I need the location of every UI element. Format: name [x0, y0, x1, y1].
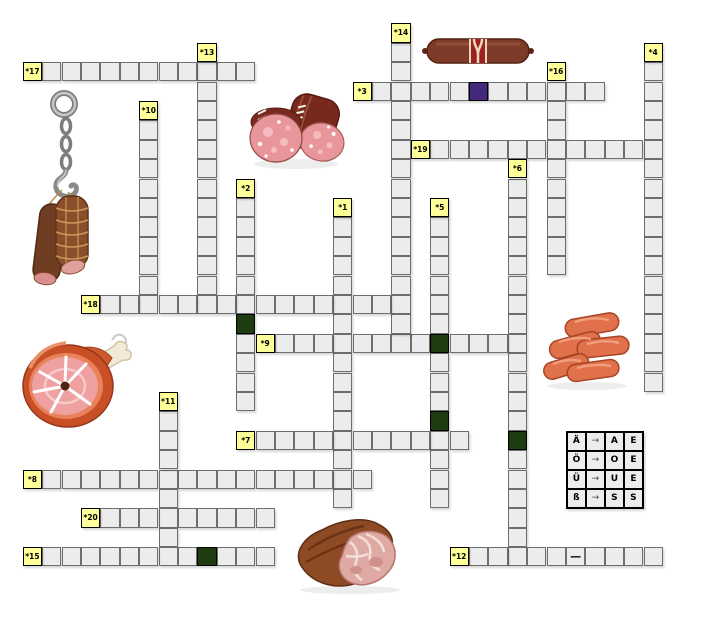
- letter-cell[interactable]: [391, 276, 410, 295]
- letter-cell[interactable]: [42, 547, 61, 566]
- letter-cell[interactable]: [333, 256, 352, 275]
- letter-cell[interactable]: [139, 295, 158, 314]
- letter-cell[interactable]: [197, 237, 216, 256]
- letter-cell[interactable]: [159, 470, 178, 489]
- clue-cell-9[interactable]: *9: [256, 334, 275, 353]
- letter-cell[interactable]: [391, 256, 410, 275]
- letter-cell[interactable]: [333, 295, 352, 314]
- clue-cell-6[interactable]: *6: [508, 159, 527, 178]
- letter-cell[interactable]: [236, 373, 255, 392]
- letter-cell[interactable]: [256, 547, 275, 566]
- letter-cell[interactable]: [236, 392, 255, 411]
- legend-cell: Ö: [567, 451, 586, 470]
- letter-cell[interactable]: [256, 295, 275, 314]
- clue-cell-17[interactable]: *17: [23, 62, 42, 81]
- letter-cell[interactable]: [139, 470, 158, 489]
- letter-cell[interactable]: [391, 295, 410, 314]
- letter-cell[interactable]: [430, 237, 449, 256]
- letter-cell[interactable]: [391, 431, 410, 450]
- letter-cell[interactable]: [644, 179, 663, 198]
- letter-cell[interactable]: [644, 353, 663, 372]
- sausage-pile-icon: [543, 306, 631, 392]
- clue-cell-7[interactable]: *7: [236, 431, 255, 450]
- legend-cell: ß: [567, 489, 586, 508]
- letter-cell[interactable]: [527, 82, 546, 101]
- letter-cell[interactable]: [411, 334, 430, 353]
- letter-cell[interactable]: [236, 508, 255, 527]
- letter-cell[interactable]: [139, 217, 158, 236]
- letter-cell[interactable]: [372, 431, 391, 450]
- letter-cell[interactable]: [372, 334, 391, 353]
- letter-cell[interactable]: [508, 276, 527, 295]
- letter-cell[interactable]: [197, 159, 216, 178]
- arrow-icon: →: [586, 489, 605, 508]
- letter-cell[interactable]: [256, 431, 275, 450]
- letter-cell[interactable]: [120, 547, 139, 566]
- letter-cell[interactable]: [547, 120, 566, 139]
- letter-cell[interactable]: [275, 470, 294, 489]
- letter-cell[interactable]: [139, 276, 158, 295]
- letter-cell[interactable]: [81, 547, 100, 566]
- letter-cell[interactable]: [333, 450, 352, 469]
- letter-cell[interactable]: [644, 82, 663, 101]
- letter-cell[interactable]: [120, 62, 139, 81]
- letter-cell[interactable]: [547, 179, 566, 198]
- arrow-icon: →: [586, 470, 605, 489]
- letter-cell[interactable]: [508, 392, 527, 411]
- letter-cell[interactable]: [139, 179, 158, 198]
- legend-cell: E: [624, 470, 643, 489]
- clue-cell-10[interactable]: *10: [139, 101, 158, 120]
- letter-cell[interactable]: [508, 217, 527, 236]
- letter-cell[interactable]: [139, 62, 158, 81]
- letter-cell[interactable]: [547, 198, 566, 217]
- letter-cell[interactable]: [42, 470, 61, 489]
- letter-cell[interactable]: [81, 62, 100, 81]
- letter-cell[interactable]: [139, 140, 158, 159]
- letter-cell[interactable]: [391, 179, 410, 198]
- letter-cell[interactable]: [197, 120, 216, 139]
- clue-cell-15[interactable]: *15: [23, 547, 42, 566]
- letter-cell[interactable]: [644, 120, 663, 139]
- hyphen-cell[interactable]: —: [566, 547, 585, 566]
- legend-cell: O: [605, 451, 624, 470]
- sausage-stick-icon: [418, 32, 538, 70]
- ham-hock-image: [20, 326, 138, 434]
- letter-cell[interactable]: [236, 295, 255, 314]
- letter-cell[interactable]: [333, 489, 352, 508]
- letter-cell[interactable]: [547, 140, 566, 159]
- letter-cell[interactable]: [100, 470, 119, 489]
- letter-cell[interactable]: [275, 295, 294, 314]
- letter-cell[interactable]: [430, 373, 449, 392]
- letter-cell[interactable]: [391, 101, 410, 120]
- letter-cell[interactable]: [159, 489, 178, 508]
- clue-cell-14[interactable]: *14: [391, 23, 410, 42]
- legend-cell: Ü: [567, 470, 586, 489]
- letter-cell[interactable]: [62, 62, 81, 81]
- letter-cell[interactable]: [120, 508, 139, 527]
- letter-cell[interactable]: [314, 431, 333, 450]
- letter-cell[interactable]: [469, 334, 488, 353]
- letter-cell[interactable]: [294, 334, 313, 353]
- letter-cell[interactable]: [469, 140, 488, 159]
- letter-cell[interactable]: [62, 547, 81, 566]
- letter-cell[interactable]: [159, 62, 178, 81]
- letter-cell[interactable]: [527, 547, 546, 566]
- letter-cell[interactable]: [644, 198, 663, 217]
- letter-cell[interactable]: [508, 450, 527, 469]
- letter-cell[interactable]: [644, 256, 663, 275]
- letter-cell[interactable]: [430, 140, 449, 159]
- letter-cell[interactable]: [411, 82, 430, 101]
- letter-cell[interactable]: [508, 334, 527, 353]
- letter-cell[interactable]: [508, 489, 527, 508]
- letter-cell[interactable]: [372, 295, 391, 314]
- letter-cell[interactable]: [508, 314, 527, 333]
- letter-cell[interactable]: [236, 198, 255, 217]
- letter-cell[interactable]: [585, 140, 604, 159]
- letter-cell[interactable]: [197, 179, 216, 198]
- letter-cell[interactable]: [430, 217, 449, 236]
- letter-cell[interactable]: [100, 62, 119, 81]
- letter-cell[interactable]: [508, 179, 527, 198]
- letter-cell[interactable]: [236, 62, 255, 81]
- letter-cell[interactable]: [391, 217, 410, 236]
- letter-cell[interactable]: [391, 43, 410, 62]
- letter-cell[interactable]: [508, 140, 527, 159]
- letter-cell[interactable]: [236, 353, 255, 372]
- sausage-stick-image: [418, 32, 538, 74]
- salami-slices-icon: [246, 92, 346, 170]
- letter-cell[interactable]: [450, 82, 469, 101]
- letter-cell[interactable]: [450, 334, 469, 353]
- letter-cell[interactable]: [333, 431, 352, 450]
- letter-cell[interactable]: [139, 508, 158, 527]
- letter-cell[interactable]: [333, 411, 352, 430]
- arrow-icon: →: [586, 451, 605, 470]
- letter-cell[interactable]: [430, 392, 449, 411]
- letter-cell[interactable]: [159, 295, 178, 314]
- letter-cell[interactable]: [333, 392, 352, 411]
- letter-cell[interactable]: [508, 547, 527, 566]
- letter-cell[interactable]: [547, 101, 566, 120]
- letter-cell[interactable]: [236, 237, 255, 256]
- letter-cell[interactable]: [391, 120, 410, 139]
- letter-cell[interactable]: [644, 295, 663, 314]
- letter-cell[interactable]: [450, 140, 469, 159]
- letter-cell[interactable]: [547, 237, 566, 256]
- separator-cell: [430, 411, 449, 430]
- roast-meat-image: [292, 512, 410, 600]
- legend-cell: E: [624, 432, 643, 451]
- letter-cell[interactable]: [294, 431, 313, 450]
- letter-cell[interactable]: [527, 140, 546, 159]
- letter-cell[interactable]: [333, 217, 352, 236]
- letter-cell[interactable]: [275, 334, 294, 353]
- legend-cell: E: [624, 451, 643, 470]
- letter-cell[interactable]: [547, 82, 566, 101]
- letter-cell[interactable]: [508, 411, 527, 430]
- letter-cell[interactable]: [197, 295, 216, 314]
- letter-cell[interactable]: [430, 276, 449, 295]
- letter-cell[interactable]: [566, 140, 585, 159]
- letter-cell[interactable]: [585, 82, 604, 101]
- letter-cell[interactable]: [139, 198, 158, 217]
- letter-cell[interactable]: [139, 547, 158, 566]
- letter-cell[interactable]: [333, 334, 352, 353]
- letter-cell[interactable]: [120, 295, 139, 314]
- letter-cell[interactable]: [508, 295, 527, 314]
- letter-cell[interactable]: [139, 237, 158, 256]
- letter-cell[interactable]: [159, 508, 178, 527]
- letter-cell[interactable]: [217, 508, 236, 527]
- letter-cell[interactable]: [256, 508, 275, 527]
- letter-cell[interactable]: [314, 470, 333, 489]
- letter-cell[interactable]: [353, 295, 372, 314]
- letter-cell[interactable]: [644, 314, 663, 333]
- letter-cell[interactable]: [197, 470, 216, 489]
- letter-cell[interactable]: [159, 528, 178, 547]
- legend-cell: S: [624, 489, 643, 508]
- letter-cell[interactable]: [236, 276, 255, 295]
- clue-cell-5[interactable]: *5: [430, 198, 449, 217]
- clue-cell-8[interactable]: *8: [23, 470, 42, 489]
- legend-cell: U: [605, 470, 624, 489]
- letter-cell[interactable]: [197, 140, 216, 159]
- letter-cell[interactable]: [430, 256, 449, 275]
- letter-cell[interactable]: [333, 237, 352, 256]
- legend-cell: Ä: [567, 432, 586, 451]
- letter-cell[interactable]: [333, 314, 352, 333]
- letter-cell[interactable]: [488, 82, 507, 101]
- letter-cell[interactable]: [430, 295, 449, 314]
- letter-cell[interactable]: [333, 276, 352, 295]
- letter-cell[interactable]: [159, 411, 178, 430]
- letter-cell[interactable]: [605, 547, 624, 566]
- letter-cell[interactable]: [566, 82, 585, 101]
- letter-cell[interactable]: [547, 256, 566, 275]
- separator-cell: [197, 547, 216, 566]
- clue-cell-4[interactable]: *4: [644, 43, 663, 62]
- letter-cell[interactable]: [314, 334, 333, 353]
- letter-cell[interactable]: [197, 198, 216, 217]
- letter-cell[interactable]: [430, 489, 449, 508]
- letter-cell[interactable]: [508, 470, 527, 489]
- ham-hock-icon: [20, 326, 138, 430]
- letter-cell[interactable]: [100, 547, 119, 566]
- letter-cell[interactable]: [197, 256, 216, 275]
- letter-cell[interactable]: [391, 140, 410, 159]
- letter-cell[interactable]: [430, 470, 449, 489]
- letter-cell[interactable]: [139, 120, 158, 139]
- letter-cell[interactable]: [391, 334, 410, 353]
- letter-cell[interactable]: [624, 547, 643, 566]
- letter-cell[interactable]: [217, 470, 236, 489]
- letter-cell[interactable]: [430, 431, 449, 450]
- letter-cell[interactable]: [644, 217, 663, 236]
- letter-cell[interactable]: [391, 159, 410, 178]
- letter-cell[interactable]: [391, 82, 410, 101]
- letter-cell[interactable]: [62, 470, 81, 489]
- letter-cell[interactable]: [644, 101, 663, 120]
- letter-cell[interactable]: [508, 508, 527, 527]
- letter-cell[interactable]: [139, 256, 158, 275]
- letter-cell[interactable]: [644, 547, 663, 566]
- letter-cell[interactable]: [644, 276, 663, 295]
- letter-cell[interactable]: [353, 470, 372, 489]
- hanging-cured-sausages-image: [26, 86, 106, 290]
- letter-cell[interactable]: [391, 237, 410, 256]
- letter-cell[interactable]: [488, 547, 507, 566]
- letter-cell[interactable]: [488, 334, 507, 353]
- letter-cell[interactable]: [353, 431, 372, 450]
- clue-cell-16[interactable]: *16: [547, 62, 566, 81]
- letter-cell[interactable]: [547, 217, 566, 236]
- arrow-icon: →: [586, 432, 605, 451]
- letter-cell[interactable]: [469, 547, 488, 566]
- letter-cell[interactable]: [159, 547, 178, 566]
- letter-cell[interactable]: [430, 82, 449, 101]
- letter-cell[interactable]: [159, 450, 178, 469]
- roast-meat-icon: [292, 512, 410, 596]
- letter-cell[interactable]: [333, 470, 352, 489]
- letter-cell[interactable]: [294, 470, 313, 489]
- letter-cell[interactable]: [508, 256, 527, 275]
- legend-cell: S: [605, 489, 624, 508]
- letter-cell[interactable]: [236, 547, 255, 566]
- letter-cell[interactable]: [197, 508, 216, 527]
- letter-cell[interactable]: [217, 547, 236, 566]
- letter-cell[interactable]: [197, 62, 216, 81]
- letter-cell[interactable]: [391, 198, 410, 217]
- letter-cell[interactable]: [508, 373, 527, 392]
- letter-cell[interactable]: [644, 159, 663, 178]
- clue-cell-18[interactable]: *18: [81, 295, 100, 314]
- letter-cell[interactable]: [508, 528, 527, 547]
- letter-cell[interactable]: [644, 373, 663, 392]
- letter-cell[interactable]: [42, 62, 61, 81]
- letter-cell[interactable]: [333, 373, 352, 392]
- letter-cell[interactable]: [430, 450, 449, 469]
- letter-cell[interactable]: [605, 140, 624, 159]
- letter-cell[interactable]: [217, 62, 236, 81]
- clue-cell-11[interactable]: *11: [159, 392, 178, 411]
- letter-cell[interactable]: [624, 140, 643, 159]
- letter-cell[interactable]: [508, 198, 527, 217]
- letter-cell[interactable]: [178, 470, 197, 489]
- letter-cell[interactable]: [236, 217, 255, 236]
- letter-cell[interactable]: [644, 334, 663, 353]
- salami-slices-image: [246, 92, 346, 174]
- letter-cell[interactable]: [353, 334, 372, 353]
- clue-cell-13[interactable]: *13: [197, 43, 216, 62]
- legend-cell: A: [605, 432, 624, 451]
- letter-cell[interactable]: [294, 295, 313, 314]
- hanging-cured-sausages-icon: [26, 86, 106, 286]
- letter-cell[interactable]: [547, 159, 566, 178]
- clue-cell-3[interactable]: *3: [353, 82, 372, 101]
- letter-cell[interactable]: [508, 82, 527, 101]
- letter-cell[interactable]: [488, 140, 507, 159]
- letter-cell[interactable]: [178, 508, 197, 527]
- umlaut-legend-table: Ä→AEÖ→OEÜ→UEß→SS: [566, 431, 644, 509]
- letter-cell[interactable]: [547, 547, 566, 566]
- clue-cell-2[interactable]: *2: [236, 179, 255, 198]
- letter-cell[interactable]: [81, 470, 100, 489]
- letter-cell[interactable]: [178, 547, 197, 566]
- letter-cell[interactable]: [411, 431, 430, 450]
- letter-cell[interactable]: [236, 334, 255, 353]
- letter-cell[interactable]: [275, 431, 294, 450]
- letter-cell[interactable]: [391, 62, 410, 81]
- letter-cell[interactable]: [644, 62, 663, 81]
- letter-cell[interactable]: [333, 353, 352, 372]
- letter-cell[interactable]: [314, 295, 333, 314]
- letter-cell[interactable]: [644, 237, 663, 256]
- letter-cell[interactable]: [508, 237, 527, 256]
- special-cell: [469, 82, 488, 101]
- letter-cell[interactable]: [159, 431, 178, 450]
- letter-cell[interactable]: [120, 470, 139, 489]
- letter-cell[interactable]: [430, 353, 449, 372]
- letter-cell[interactable]: [236, 470, 255, 489]
- letter-cell[interactable]: [100, 295, 119, 314]
- letter-cell[interactable]: [178, 295, 197, 314]
- letter-cell[interactable]: [508, 353, 527, 372]
- letter-cell[interactable]: [644, 140, 663, 159]
- letter-cell[interactable]: [450, 431, 469, 450]
- crossword-page: *1*2*3*4*5*6*7*8*9*10*11*12—*13*14*15*16…: [0, 0, 718, 631]
- separator-cell: [508, 431, 527, 450]
- letter-cell[interactable]: [372, 82, 391, 101]
- letter-cell[interactable]: [430, 314, 449, 333]
- sausage-pile-image: [543, 306, 631, 396]
- clue-cell-12[interactable]: *12: [450, 547, 469, 566]
- letter-cell[interactable]: [236, 256, 255, 275]
- letter-cell[interactable]: [197, 101, 216, 120]
- clue-cell-19[interactable]: *19: [411, 140, 430, 159]
- letter-cell[interactable]: [139, 159, 158, 178]
- letter-cell[interactable]: [256, 470, 275, 489]
- letter-cell[interactable]: [197, 276, 216, 295]
- letter-cell[interactable]: [217, 295, 236, 314]
- letter-cell[interactable]: [197, 82, 216, 101]
- clue-cell-20[interactable]: *20: [81, 508, 100, 527]
- letter-cell[interactable]: [197, 217, 216, 236]
- letter-cell[interactable]: [100, 508, 119, 527]
- letter-cell[interactable]: [391, 314, 410, 333]
- clue-cell-1[interactable]: *1: [333, 198, 352, 217]
- letter-cell[interactable]: [585, 547, 604, 566]
- separator-cell: [430, 334, 449, 353]
- letter-cell[interactable]: [178, 62, 197, 81]
- separator-cell: [236, 314, 255, 333]
